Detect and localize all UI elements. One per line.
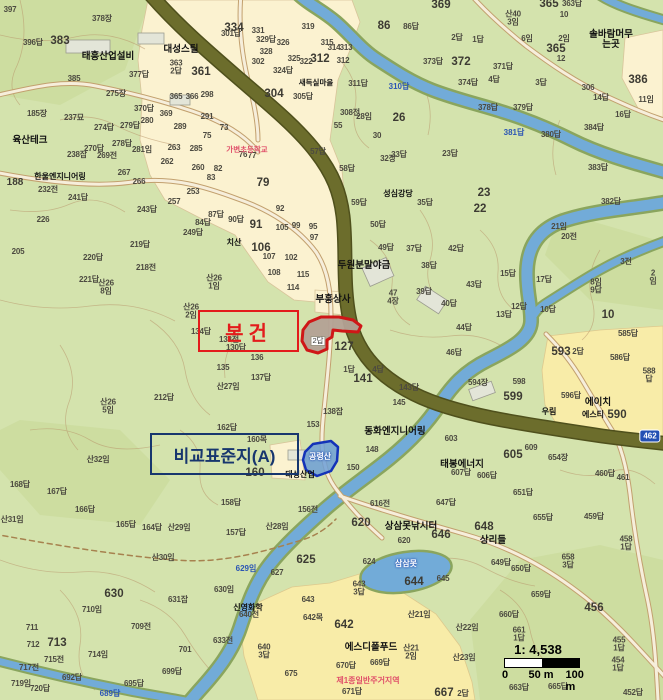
map-label: 695답 [124,680,144,688]
map-label: 43답 [466,281,482,289]
map-label: 46답 [446,349,462,357]
map-label: 26 [393,112,406,124]
map-label: 650답 [511,565,531,573]
map-label: 692답 [62,674,82,682]
map-label: 275장 [106,90,126,98]
map-label: 270답 [84,145,104,153]
map-label: 312 [337,57,350,65]
map-label: 우림 [542,408,557,416]
map-label: 산21 2임 [403,645,419,662]
map-label: 459답 [584,513,604,521]
map-label: 47 4장 [387,290,398,307]
map-label: 624 [363,558,376,566]
map-label: 136 [251,354,264,362]
map-label: 675 [285,670,298,678]
map-label: 456 [584,602,603,614]
map-label: 326 [277,39,290,47]
map-label: 2답 [451,34,462,42]
map-label: 377답 [129,71,149,79]
map-label: 633전 [213,637,233,645]
map-label: 23답 [442,150,458,158]
map-label: 645 [437,575,450,583]
map-label: 16답 [615,111,631,119]
map-label: 2답 [457,690,468,698]
map-label: 3답 [535,79,546,87]
map-label: 291 [201,113,214,121]
map-label: 158답 [221,499,241,507]
map-label: 370답 [134,105,154,113]
map-label: 135 [217,364,230,372]
map-label: 79 [257,177,270,189]
map-label: 640 3답 [258,644,271,661]
map-label: 2답 [310,336,325,346]
map-label: 138잡 [323,408,343,416]
map-label: 42답 [448,245,464,253]
map-label: 649답 [491,559,511,567]
map-label: 609 [525,444,538,452]
map-label: 새득실마을 [299,79,334,87]
map-label: 720답 [30,685,50,693]
map-label: 325 [288,55,301,63]
map-label: 2임 [648,270,658,287]
map-label: 40답 [441,300,457,308]
map-label: 396답 [23,39,43,47]
map-label: 신영화학 [233,604,262,612]
map-label: 50답 [370,221,386,229]
map-label: 717전 [19,664,39,672]
map-label: 산26 2임 [183,304,199,321]
map-label: 629임 [236,565,257,573]
map-label: 640전 [239,611,259,619]
map-label: 630임 [214,586,234,594]
map-label: 35답 [417,199,433,207]
map-label: 461 [617,474,630,482]
map-label: 334 [224,22,243,34]
map-label: 647답 [436,499,456,507]
map-label: 6임 [521,35,532,43]
map-label: 301답 [221,30,241,38]
map-label: 90답 [228,216,244,224]
map-label: 289 [174,123,187,131]
map-label: 102 [285,254,298,262]
map-label: 627 [271,569,284,577]
map-label: 306 [582,84,595,92]
map-label: 76 [239,151,248,159]
scale-ratio: 1: 4,538 [496,642,580,657]
map-label: 164답 [142,524,162,532]
map-label: 658 3답 [562,554,575,571]
map-label: 97 [310,234,319,242]
map-label: 156전 [298,506,318,514]
map-label: 274답 [94,124,114,132]
map-label: 166답 [75,506,95,514]
map-label: 2답 [572,348,583,356]
map-label: 384답 [584,124,604,132]
map-label: 588답 [642,368,656,385]
map-label: 304 [264,88,283,100]
map-label: 241답 [68,194,88,202]
map-label: 644 [404,576,423,588]
map-label: 삼삼못 [395,560,417,568]
map-label: 715전 [44,656,64,664]
scale-tick-0: 0 [502,669,508,681]
map-label: 263 [168,144,181,152]
map-label: 87답 [208,211,224,219]
map-label: 315 [321,39,334,47]
map-label: 378장 [92,15,112,23]
map-label: 458 1답 [620,536,633,553]
map-label: 에스디폴푸드 [345,643,397,653]
map-label: 10답 [540,306,556,314]
map-label: 226 [37,216,50,224]
map-label: 상삼못낚시터 [385,522,437,532]
map-label: 59답 [351,199,367,207]
map-label: 313 [340,44,353,52]
map-label: 공령산 [309,453,331,461]
scale-bar-white [505,659,542,667]
scale-ticks: 0 50 m 100 m [496,669,606,681]
map-label: 86답 [403,23,419,31]
map-label: 141 [353,373,372,385]
map-label: 33답 [391,151,407,159]
map-label: 646 [431,529,450,541]
map-label: 594장 [468,379,488,387]
map-label: 386 [628,74,647,86]
map-label: 643 [302,596,315,604]
comparison-annotation-box: 비교표준지(A) [150,433,299,475]
map-label: 55 [334,122,343,130]
map-label: 643 3답 [353,581,366,598]
map-label: 28임 [356,113,372,121]
map-label: 13답 [496,311,512,319]
map-label: 21임 [551,223,567,231]
map-label: 75 [203,132,212,140]
map-label: 산26 8임 [98,280,114,297]
map-label: 188 [7,178,24,189]
map-label: 651답 [513,489,533,497]
map-label: 162답 [217,424,237,432]
map-label: 266 [133,178,146,186]
map-label: 667 [434,687,453,699]
map-label: 365 [170,93,183,101]
map-label: 322 [300,58,313,66]
map-label: 369 [160,110,173,118]
map-label: 86 [378,20,391,32]
map-label: 329답 [256,36,276,44]
map-label: 205 [12,248,25,256]
map-label: 663답 [509,684,529,692]
map-label: 220답 [83,254,103,262]
map-label: 185장 [27,110,47,118]
map-label: 660답 [499,611,519,619]
map-label: 710임 [82,606,102,614]
map-label: 378답 [478,104,498,112]
map-label: 269전 [97,152,117,160]
scale-tick-50: 50 m [528,669,553,681]
map-label: 산30임 [152,554,175,562]
map-label: 319 [302,23,315,31]
map-label: 219답 [130,241,150,249]
map-label: 20전 [561,233,577,241]
map-label: 11임 [638,96,653,104]
map-label: 168답 [10,481,30,489]
map-label: 383 [50,35,69,47]
map-label: 153 [307,421,320,429]
map-label: 137답 [251,374,271,382]
map-label: 10 [602,309,615,321]
map-label: 314 [328,44,341,52]
map-label: 659답 [531,591,551,599]
map-label: 15답 [500,270,516,278]
map-label: 311답 [348,80,367,88]
map-label: 630 [104,588,123,600]
map-label: 369 [431,0,450,11]
map-label: 642목 [303,614,323,622]
map-label: 산32임 [87,456,110,464]
map-label: 671답 [342,688,362,696]
map-label: 328 [260,48,273,56]
map-label: 383답 [588,164,608,172]
subject-annotation-label: 본건 [225,317,272,346]
map-label: 150 [347,464,360,472]
map-label: 308전 [340,109,360,117]
map-label: 성심강당 [383,190,412,198]
map-label: 279답 [120,122,140,130]
map-label: 4답 [488,76,499,84]
map-label: 586답 [610,354,630,362]
map-label: 460답 [595,470,615,478]
map-label: 379답 [513,104,533,112]
map-label: 산21임 [408,611,431,619]
map-label: 719임 [11,680,31,688]
map-label: 91 [250,219,263,231]
map-label: 267 [118,169,131,177]
map-label: 2임 [558,35,569,43]
map-label: 699답 [162,668,182,676]
map-label: 385 [68,75,81,83]
map-label: 태봉에너지 [440,460,484,470]
map-label: 590 [607,409,626,421]
map-label: 92 [276,205,285,213]
map-label: 598 [513,378,526,386]
map-label: 712 [27,641,40,649]
map-label: 82 [214,165,223,173]
map-label: 280 [141,117,154,125]
map-label: 670답 [336,662,356,670]
map-label: 솔바람머무는곳 [585,30,637,50]
map-label: 331 [252,27,265,35]
map-label: 22 [474,203,487,215]
map-label: 산29임 [168,524,191,532]
map-label: 산40 3임 [505,11,521,28]
map-label: 157답 [226,529,246,537]
map-label: 105 [276,224,289,232]
map-label: 371답 [493,63,513,71]
map-label: 278답 [112,140,132,148]
map-label: 452답 [623,689,643,697]
map-label: 23 [478,187,491,199]
map-label: 육산테크 [13,136,48,146]
map-label: 14답 [593,94,609,102]
map-label: 218전 [136,264,156,272]
map-label: 711 [26,624,38,632]
map-label: 77 [248,152,257,160]
map-label: 382답 [601,198,621,206]
map-label: 253 [187,188,200,196]
map-label: 1답 [343,366,354,374]
map-label: 606답 [477,472,497,480]
map-label: 제1종일반주거지역 [336,677,399,685]
map-label: 374답 [458,79,478,87]
map-label: 145 [393,399,406,407]
map-label: 655답 [533,514,553,522]
map-label: 605 [503,449,522,461]
map-label: 114 [287,284,299,292]
map-label: 397 [4,6,17,14]
map-label: 237묘 [64,114,84,122]
map-label: 324답 [273,67,293,75]
map-label: 태흥산업설비 [82,52,134,62]
map-label: 365 [539,0,558,10]
map-label: 치산 [227,239,242,247]
map-label: 616전 [370,500,390,508]
map-label: 661 1답 [513,627,526,644]
map-label: 631잡 [168,596,188,604]
map-label: 산23임 [453,654,476,662]
map-label: 689답 [100,690,121,698]
map-label: 381답 [504,129,525,137]
map-label: 620 [398,537,411,545]
map-label: 산27임 [217,383,240,391]
map-label: 107 [263,253,276,261]
map-label: 165답 [116,521,136,529]
map-label: 596답 [561,392,581,400]
map-label: 298 [201,91,214,99]
route-shield: 462 [639,430,660,443]
map-label: 10 [560,11,569,19]
map-label: 585답 [618,330,638,338]
map-label: 380답 [541,131,561,139]
map-label: 257 [168,198,181,206]
map-label: 두원분말야금 [338,261,390,271]
map-label: 4답 [372,366,383,374]
map-label: 49답 [378,244,394,252]
map-label: 가변초등학교 [226,146,267,154]
map-label: 669답 [370,659,390,667]
map-label: 57답 [310,148,326,156]
map-label: 산22임 [456,624,479,632]
map-label: 607답 [451,469,471,477]
map-label: 58답 [339,165,355,173]
map-label: 30 [373,132,382,140]
map-label: 8임 9답 [590,279,601,296]
scale-bar [504,658,580,668]
map-label: 산26 5임 [100,399,116,416]
cadastral-map: 397378장383396답태흥산업설비385377답275장274답237묘1… [0,0,663,700]
map-label: 361 [191,66,210,78]
map-label: 95 [309,223,318,231]
map-label: 238잡 [67,151,87,159]
map-label: 143답 [399,384,419,392]
map-label: 127 [334,341,353,353]
map-label: 648 [474,521,493,533]
map-label: 148 [366,446,379,454]
scale-tick-100: 100 m [566,669,593,693]
map-label: 39답 [416,288,432,296]
map-label: 167답 [47,488,67,496]
map-label: 산26 1임 [206,275,222,292]
map-label: 106 [251,242,270,254]
map-label: 17답 [536,276,552,284]
map-label: 대성스틸 [164,45,199,55]
map-label: 37답 [406,245,422,253]
subject-annotation-box: 본건 [198,310,299,352]
map-label: 260 [192,164,205,172]
map-label: 108 [268,269,281,277]
map-label: 599 [503,391,522,403]
map-label: 593 [551,346,570,358]
map-label: 상리들 [480,536,506,546]
map-label: 32장 [380,155,396,163]
map-label: 363 2답 [170,60,183,77]
map-label: 84답 [195,219,211,227]
map-label: 산28임 [266,523,289,531]
map-label: 363답 [562,0,582,8]
map-label: 620 [351,517,370,529]
map-label: 281임 [132,146,152,154]
map-label: 73 [220,124,229,132]
map-label: 249답 [183,229,203,237]
map-label: 221답 [79,276,99,284]
map-label: 232전 [38,186,58,194]
map-label: 312 [310,53,329,65]
map-labels-layer: 397378장383396답태흥산업설비385377답275장274답237묘1… [0,0,663,700]
map-label: 한울엔지니어링 [34,173,86,181]
map-label: 44답 [456,324,472,332]
map-label: 642 [334,619,353,631]
map-label: 212답 [154,394,174,402]
map-label: 454 1답 [612,657,625,674]
map-label: 709전 [131,623,151,631]
map-label: 3전 [620,258,631,266]
map-label: 83 [207,174,216,182]
map-label: 305답 [293,93,313,101]
map-label: 산31임 [1,516,24,524]
map-label: 262 [161,158,174,166]
map-label: 에스티 [582,411,604,419]
map-label: 373답 [423,58,443,66]
map-label: 243답 [137,206,157,214]
map-label: 38답 [421,262,437,270]
map-label: 455 1답 [613,637,626,654]
map-label: 부흥상사 [316,295,351,305]
map-label: 99 [292,222,301,230]
map-label: 603 [445,435,458,443]
map-label: 285 [190,145,203,153]
map-label: 302 [252,58,265,66]
comparison-annotation-label: 비교표준지(A) [174,442,276,467]
map-label: 701 [179,646,192,654]
map-label: 366 [186,93,199,101]
map-label: 714임 [88,651,108,659]
map-label: 625 [296,554,315,566]
map-scale: 1: 4,538 0 50 m 100 m [496,642,606,681]
map-label: 1답 [472,36,483,44]
map-label: 365 [546,43,565,55]
map-label: 12 [557,55,566,63]
map-label: 654장 [548,454,568,462]
map-label: 에이치 [585,398,611,408]
